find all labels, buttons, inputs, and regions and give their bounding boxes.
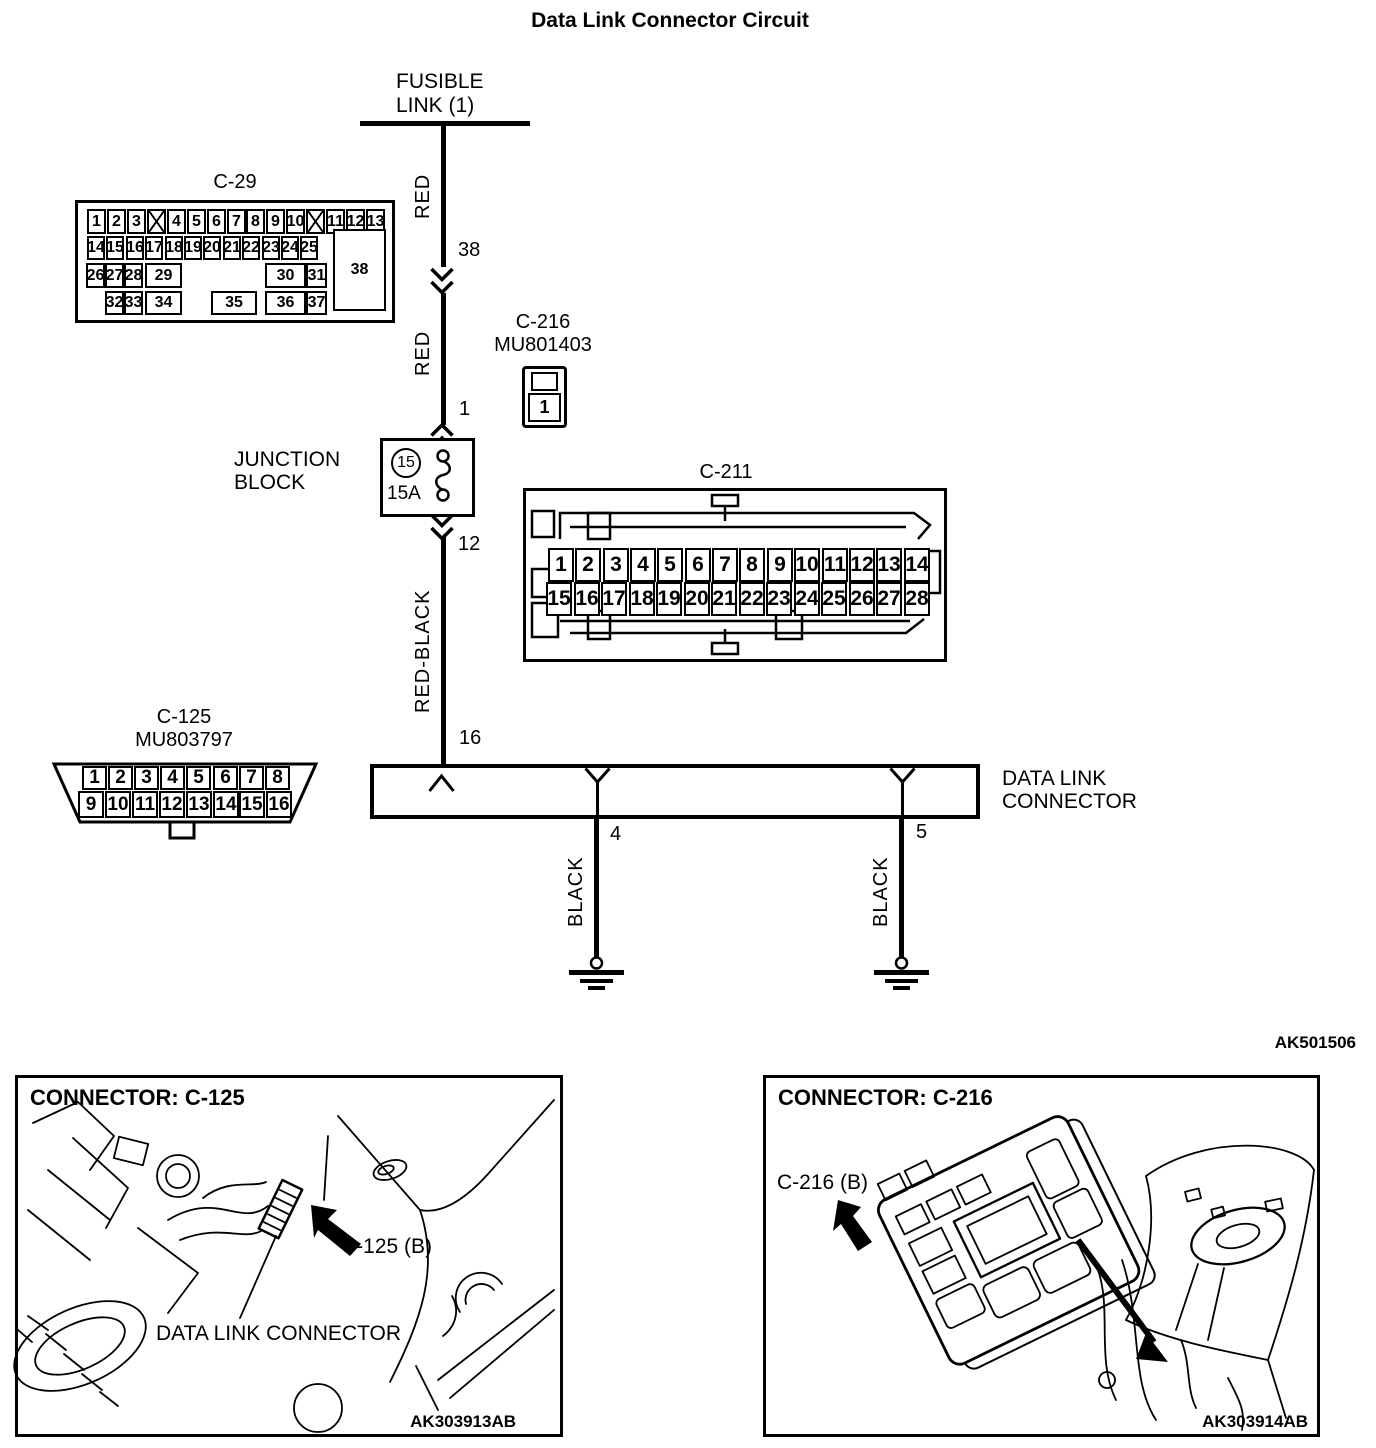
- pin-cell-13: 13: [876, 548, 902, 582]
- c29-pin-grid: 1234567891011121314151617181920212223242…: [78, 203, 392, 320]
- wire-red-segment-1: [441, 124, 446, 267]
- wire-red-black-segment: [441, 537, 446, 766]
- pin-cell-10: 10: [794, 548, 820, 582]
- dlc-label-line2: CONNECTOR: [1002, 791, 1137, 813]
- c216-part-number: MU801403: [478, 335, 608, 356]
- pin-cell-33: 33: [124, 291, 143, 315]
- pin-cell-17: 17: [601, 582, 627, 616]
- junction-block-label-line1: JUNCTION: [234, 449, 340, 471]
- pin-cell-1: 1: [87, 209, 106, 234]
- wire-color-label-red-upper: RED: [412, 160, 435, 232]
- photo-c125-header: CONNECTOR: C-125: [30, 1085, 245, 1111]
- pin-cell-19: 19: [656, 582, 682, 616]
- pin-cell-25: 25: [300, 236, 318, 260]
- pin-cell-5: 5: [186, 766, 211, 790]
- pin-number-38: 38: [458, 240, 480, 261]
- c29-title: C-29: [185, 172, 285, 193]
- c211-title: C-211: [676, 462, 776, 483]
- fuse-number-circle: 15: [391, 448, 421, 478]
- c125-part-number: MU803797: [119, 730, 249, 751]
- pin-cell-26: 26: [86, 263, 105, 288]
- c216-pin-1-cell: 1: [528, 393, 561, 422]
- pin-cell-7: 7: [239, 766, 264, 790]
- pin-cell-12: 12: [159, 791, 185, 818]
- pin-cell-8: 8: [246, 209, 265, 234]
- pin-cell-28: 28: [124, 263, 143, 288]
- c125-caption-label: DATA LINK CONNECTOR: [156, 1323, 401, 1345]
- pin-cell-37: 37: [306, 291, 327, 315]
- connector-junction-symbol-jb-out: [430, 513, 454, 540]
- c125-callout-label: C-125 (B): [341, 1236, 432, 1258]
- pin-cell-3: 3: [127, 209, 146, 234]
- fuse-symbol: [423, 449, 463, 505]
- c211-connector: 1234567891011121314151617181920212223242…: [523, 488, 947, 662]
- fuse-rating-label: 15A: [387, 483, 421, 505]
- pin-number-4: 4: [610, 824, 621, 845]
- diagram-code: AK501506: [1206, 1033, 1356, 1053]
- pin-cell-13: 13: [186, 791, 212, 818]
- pin-cell-18: 18: [165, 236, 183, 260]
- pin-cell-16: 16: [266, 791, 292, 818]
- pin-number-5: 5: [916, 822, 927, 843]
- pin-number-1: 1: [459, 399, 470, 420]
- c125-connector: 12345678910111213141516: [50, 756, 320, 848]
- pin-cell-4: 4: [630, 548, 656, 582]
- pin-cell-36: 36: [265, 291, 306, 315]
- c211-pin-grid: 1234567891011121314151617181920212223242…: [526, 491, 944, 659]
- fusible-link-label-line1: FUSIBLE: [396, 71, 484, 93]
- pin-cell-2: 2: [575, 548, 601, 582]
- pin-number-16: 16: [459, 728, 481, 749]
- pin-cell-22: 22: [739, 582, 765, 616]
- wire-color-label-black-left: BLACK: [565, 850, 588, 934]
- fusible-link-label-line2: LINK (1): [396, 95, 474, 117]
- pin-cell-14: 14: [87, 236, 105, 260]
- pin-cell-3: 3: [134, 766, 159, 790]
- dlc-label-line1: DATA LINK: [1002, 768, 1106, 790]
- pin-cell-4: 4: [160, 766, 185, 790]
- pin-cell-14: 14: [213, 791, 239, 818]
- wire-red-segment-2: [441, 293, 446, 425]
- wire-black-right: [899, 817, 904, 964]
- pin-cell-38: 38: [333, 229, 386, 311]
- c125-location-illustration: [18, 1078, 560, 1434]
- photo-c216-code: AK303914AB: [1158, 1412, 1308, 1432]
- page-title: Data Link Connector Circuit: [430, 10, 910, 32]
- pin-cell-1: 1: [82, 766, 107, 790]
- pin-cell-24: 24: [794, 582, 820, 616]
- pin-cell-11: 11: [132, 791, 158, 818]
- pin-cell-23: 23: [262, 236, 280, 260]
- photo-c216-header: CONNECTOR: C-216: [778, 1085, 993, 1111]
- ground-symbol-left: [566, 956, 628, 998]
- pin-cell-26: 26: [849, 582, 875, 616]
- blocked-cavity: [306, 209, 325, 234]
- c216-title: C-216: [493, 312, 593, 333]
- dlc-terminal-5: [889, 767, 916, 818]
- pin-cell-6: 6: [685, 548, 711, 582]
- pin-cell-20: 20: [203, 236, 221, 260]
- pin-cell-21: 21: [711, 582, 737, 616]
- pin-cell-16: 16: [574, 582, 600, 616]
- pin-cell-6: 6: [213, 766, 238, 790]
- pin-cell-11: 11: [822, 548, 848, 582]
- pin-cell-9: 9: [767, 548, 793, 582]
- pin-cell-15: 15: [239, 791, 265, 818]
- ground-symbol-right: [871, 956, 933, 998]
- pin-cell-12: 12: [849, 548, 875, 582]
- photo-box-c125: CONNECTOR: C-125 C-125 (B) DATA LINK CON…: [15, 1075, 563, 1437]
- pin-cell-15: 15: [106, 236, 124, 260]
- pin-cell-3: 3: [603, 548, 629, 582]
- c125-title: C-125: [134, 707, 234, 728]
- c216-connector-icon: 1: [522, 366, 567, 428]
- junction-block-label-line2: BLOCK: [234, 472, 305, 494]
- wire-black-left: [594, 817, 599, 964]
- pin-cell-35: 35: [211, 291, 257, 315]
- pin-cell-18: 18: [629, 582, 655, 616]
- dlc-terminal-16: [428, 773, 455, 793]
- pin-cell-2: 2: [107, 209, 126, 234]
- pin-cell-10: 10: [105, 791, 131, 818]
- pin-cell-32: 32: [105, 291, 124, 315]
- pin-cell-30: 30: [265, 263, 306, 288]
- c125-pin-grid: 12345678910111213141516: [50, 756, 320, 848]
- pin-cell-17: 17: [145, 236, 163, 260]
- pin-cell-27: 27: [876, 582, 902, 616]
- pin-cell-2: 2: [108, 766, 133, 790]
- pin-cell-20: 20: [684, 582, 710, 616]
- wire-color-label-red-black: RED-BLACK: [412, 577, 435, 725]
- pin-cell-29: 29: [145, 263, 182, 288]
- pin-cell-28: 28: [904, 582, 930, 616]
- pin-cell-1: 1: [548, 548, 574, 582]
- pin-cell-34: 34: [145, 291, 182, 315]
- photo-c125-code: AK303913AB: [366, 1412, 516, 1432]
- pin-cell-23: 23: [766, 582, 792, 616]
- c216-latch-cavity: [531, 372, 558, 391]
- wire-color-label-red-lower: RED: [412, 320, 435, 386]
- pin-cell-19: 19: [184, 236, 202, 260]
- blocked-cavity: [147, 209, 166, 234]
- c216-callout-label: C-216 (B): [777, 1172, 868, 1194]
- pin-cell-9: 9: [266, 209, 285, 234]
- dlc-terminal-4: [584, 767, 611, 818]
- pin-cell-14: 14: [904, 548, 930, 582]
- pin-cell-25: 25: [821, 582, 847, 616]
- wire-color-label-black-right: BLACK: [870, 850, 893, 934]
- pin-cell-31: 31: [306, 263, 327, 288]
- photo-box-c216: CONNECTOR: C-216 C-216 (B) AK303914AB: [763, 1075, 1320, 1437]
- pin-cell-5: 5: [657, 548, 683, 582]
- pin-cell-22: 22: [242, 236, 260, 260]
- pin-cell-21: 21: [223, 236, 241, 260]
- wiring-diagram-page: Data Link Connector Circuit FUSIBLE LINK…: [0, 0, 1376, 1448]
- c216-location-illustration: [766, 1078, 1317, 1434]
- pin-cell-9: 9: [78, 791, 104, 818]
- pin-cell-5: 5: [187, 209, 206, 234]
- pin-number-12: 12: [458, 534, 480, 555]
- pin-cell-8: 8: [739, 548, 765, 582]
- pin-cell-24: 24: [281, 236, 299, 260]
- pin-cell-4: 4: [167, 209, 186, 234]
- connector-junction-symbol-38: [430, 267, 454, 294]
- callout-arrow-c216: [833, 1200, 872, 1251]
- pin-cell-10: 10: [286, 209, 305, 234]
- pin-cell-27: 27: [105, 263, 124, 288]
- pin-cell-16: 16: [126, 236, 144, 260]
- pin-cell-7: 7: [227, 209, 246, 234]
- pin-cell-8: 8: [265, 766, 290, 790]
- pin-cell-6: 6: [207, 209, 226, 234]
- c29-connector: 1234567891011121314151617181920212223242…: [75, 200, 395, 323]
- pin-cell-7: 7: [712, 548, 738, 582]
- pin-cell-15: 15: [546, 582, 572, 616]
